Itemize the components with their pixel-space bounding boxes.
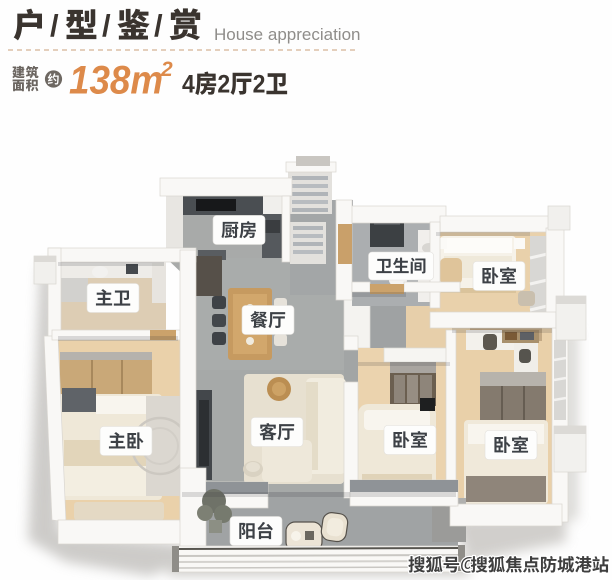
- svg-text:2: 2: [160, 58, 173, 81]
- svg-text:House appreciation: House appreciation: [214, 25, 360, 44]
- svg-text:/: /: [50, 8, 59, 43]
- svg-text:/: /: [102, 8, 111, 43]
- svg-text:2: 2: [217, 71, 230, 99]
- svg-text:2: 2: [253, 71, 266, 99]
- svg-text:/: /: [154, 8, 163, 43]
- svg-text:138m: 138m: [69, 58, 163, 103]
- svg-text:4: 4: [182, 71, 195, 99]
